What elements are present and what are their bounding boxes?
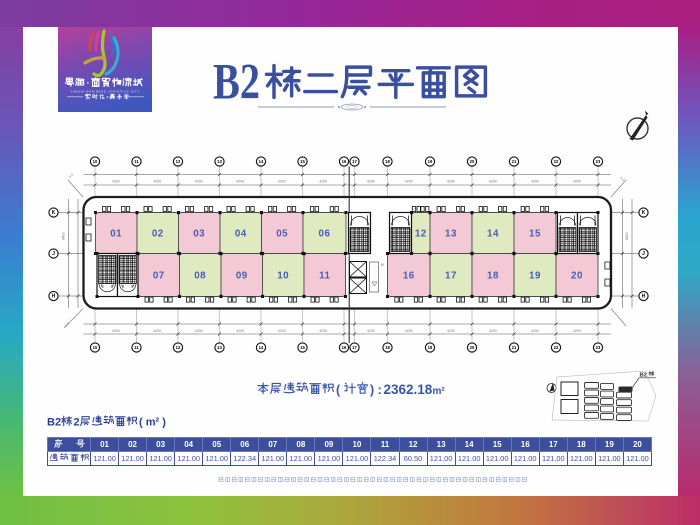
svg-text:4200: 4200: [447, 180, 455, 184]
svg-text:4200: 4200: [489, 329, 497, 333]
svg-text:4200: 4200: [278, 329, 286, 333]
svg-text:2: 2: [74, 417, 80, 429]
svg-text:21: 21: [512, 345, 517, 350]
svg-text:4200: 4200: [405, 329, 413, 333]
svg-text:09: 09: [236, 271, 248, 282]
svg-text:13: 13: [217, 159, 222, 164]
svg-text:12: 12: [415, 229, 427, 240]
svg-text:20: 20: [571, 271, 583, 282]
svg-text:03: 03: [193, 229, 205, 240]
svg-text:1: 1: [102, 285, 104, 289]
svg-text:1: 1: [123, 285, 125, 289]
svg-text:14: 14: [259, 345, 264, 350]
svg-text:11: 11: [319, 271, 330, 282]
svg-text:06: 06: [319, 229, 331, 240]
svg-text:H: H: [52, 294, 56, 300]
svg-text:15: 15: [300, 345, 305, 350]
svg-text:m²: m²: [433, 386, 446, 397]
svg-text:4200: 4200: [405, 180, 413, 184]
svg-text:02: 02: [152, 229, 164, 240]
svg-text:8400: 8400: [625, 232, 629, 240]
svg-text:4200: 4200: [236, 329, 244, 333]
svg-text:23: 23: [596, 345, 601, 350]
svg-text:2362.18: 2362.18: [384, 382, 433, 397]
svg-text:2: 2: [111, 285, 113, 289]
svg-text:4200: 4200: [153, 329, 161, 333]
svg-text:11: 11: [134, 159, 139, 164]
svg-text:2: 2: [131, 285, 133, 289]
svg-text:15: 15: [300, 159, 305, 164]
svg-text:12: 12: [176, 159, 181, 164]
svg-text:4200: 4200: [367, 180, 375, 184]
svg-text:10: 10: [93, 345, 98, 350]
svg-text:18: 18: [385, 159, 390, 164]
svg-text:14: 14: [487, 229, 499, 240]
svg-text:4200: 4200: [573, 180, 581, 184]
svg-text:4200: 4200: [319, 329, 327, 333]
svg-text:16: 16: [403, 271, 415, 282]
svg-text:16: 16: [342, 159, 347, 164]
svg-text:19: 19: [428, 159, 433, 164]
svg-text:4200: 4200: [112, 180, 120, 184]
svg-text:4200: 4200: [573, 329, 581, 333]
svg-text:01: 01: [110, 229, 122, 240]
svg-text:23: 23: [596, 159, 601, 164]
svg-text:20: 20: [470, 345, 475, 350]
svg-text:4200: 4200: [112, 329, 120, 333]
svg-text:17: 17: [445, 271, 457, 282]
svg-text:8400: 8400: [62, 232, 66, 240]
svg-text:07: 07: [153, 271, 165, 282]
svg-text:J: J: [52, 251, 55, 257]
svg-text:K: K: [642, 210, 646, 216]
svg-text:22: 22: [554, 159, 559, 164]
svg-text:( m² ): ( m² ): [139, 417, 166, 429]
svg-text:22: 22: [554, 345, 559, 350]
svg-text:4200: 4200: [367, 329, 375, 333]
svg-text:4200: 4200: [531, 329, 539, 333]
svg-text:10: 10: [277, 271, 289, 282]
svg-text:B2: B2: [47, 417, 61, 429]
svg-text:18: 18: [487, 271, 499, 282]
svg-text:17: 17: [352, 345, 357, 350]
svg-text:13: 13: [217, 345, 222, 350]
svg-text:(: (: [336, 383, 341, 397]
svg-text:4200: 4200: [447, 329, 455, 333]
svg-text:M: M: [381, 263, 384, 267]
svg-text:4200: 4200: [195, 180, 203, 184]
svg-text:YUEHAI BUSINESS LOGISTICS CITY: YUEHAI BUSINESS LOGISTICS CITY: [70, 90, 140, 94]
svg-text:) :: ) :: [370, 383, 382, 397]
svg-text:14: 14: [259, 159, 264, 164]
svg-text:4200: 4200: [153, 180, 161, 184]
svg-text:08: 08: [194, 271, 206, 282]
svg-text:4200: 4200: [278, 180, 286, 184]
svg-text:12: 12: [176, 345, 181, 350]
svg-text:19: 19: [529, 271, 541, 282]
svg-text:16: 16: [342, 345, 347, 350]
svg-text:19: 19: [428, 345, 433, 350]
svg-text:4200: 4200: [489, 180, 497, 184]
svg-text:4200: 4200: [236, 180, 244, 184]
svg-text:11: 11: [134, 345, 139, 350]
svg-text:K: K: [52, 210, 56, 216]
svg-text:1-1: 1-1: [68, 172, 74, 178]
svg-text:10: 10: [93, 159, 98, 164]
svg-text:17: 17: [352, 159, 357, 164]
svg-text:4200: 4200: [531, 180, 539, 184]
svg-text:H: H: [642, 294, 646, 300]
svg-text:05: 05: [276, 229, 288, 240]
svg-text:20: 20: [470, 159, 475, 164]
svg-text:04: 04: [235, 229, 247, 240]
svg-text:4200: 4200: [195, 329, 203, 333]
svg-text:13: 13: [445, 229, 457, 240]
svg-text:21: 21: [512, 159, 517, 164]
svg-text:15: 15: [529, 229, 541, 240]
svg-text:J: J: [642, 251, 645, 257]
svg-text:18: 18: [385, 345, 390, 350]
svg-text:4200: 4200: [319, 180, 327, 184]
